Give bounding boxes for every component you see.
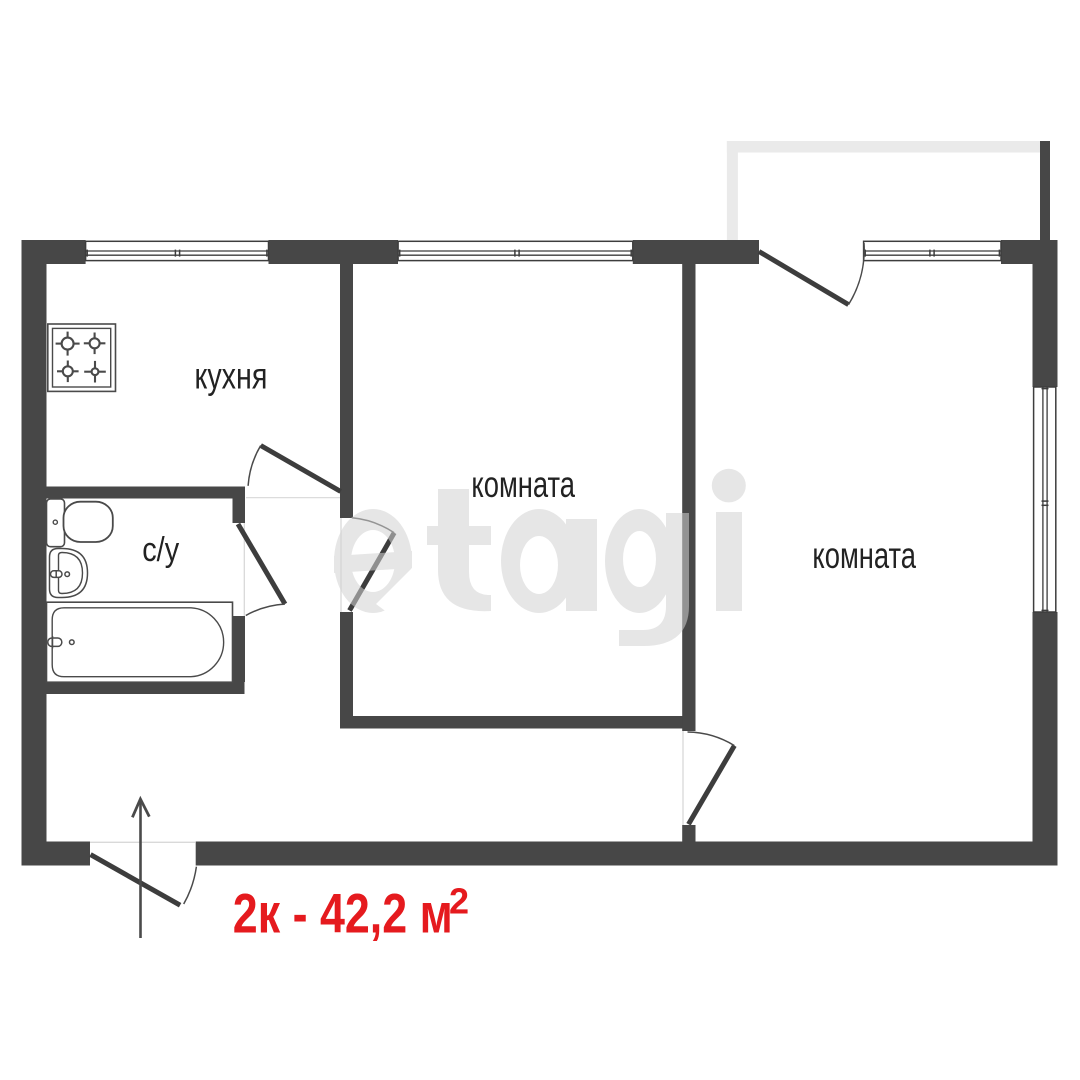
- svg-text:2: 2: [449, 881, 469, 922]
- svg-text:комната: комната: [812, 534, 916, 576]
- svg-text:кухня: кухня: [194, 356, 267, 397]
- svg-text:комната: комната: [471, 463, 575, 505]
- svg-text:2к - 42,2 м: 2к - 42,2 м: [233, 882, 453, 945]
- svg-text:с/у: с/у: [142, 530, 179, 569]
